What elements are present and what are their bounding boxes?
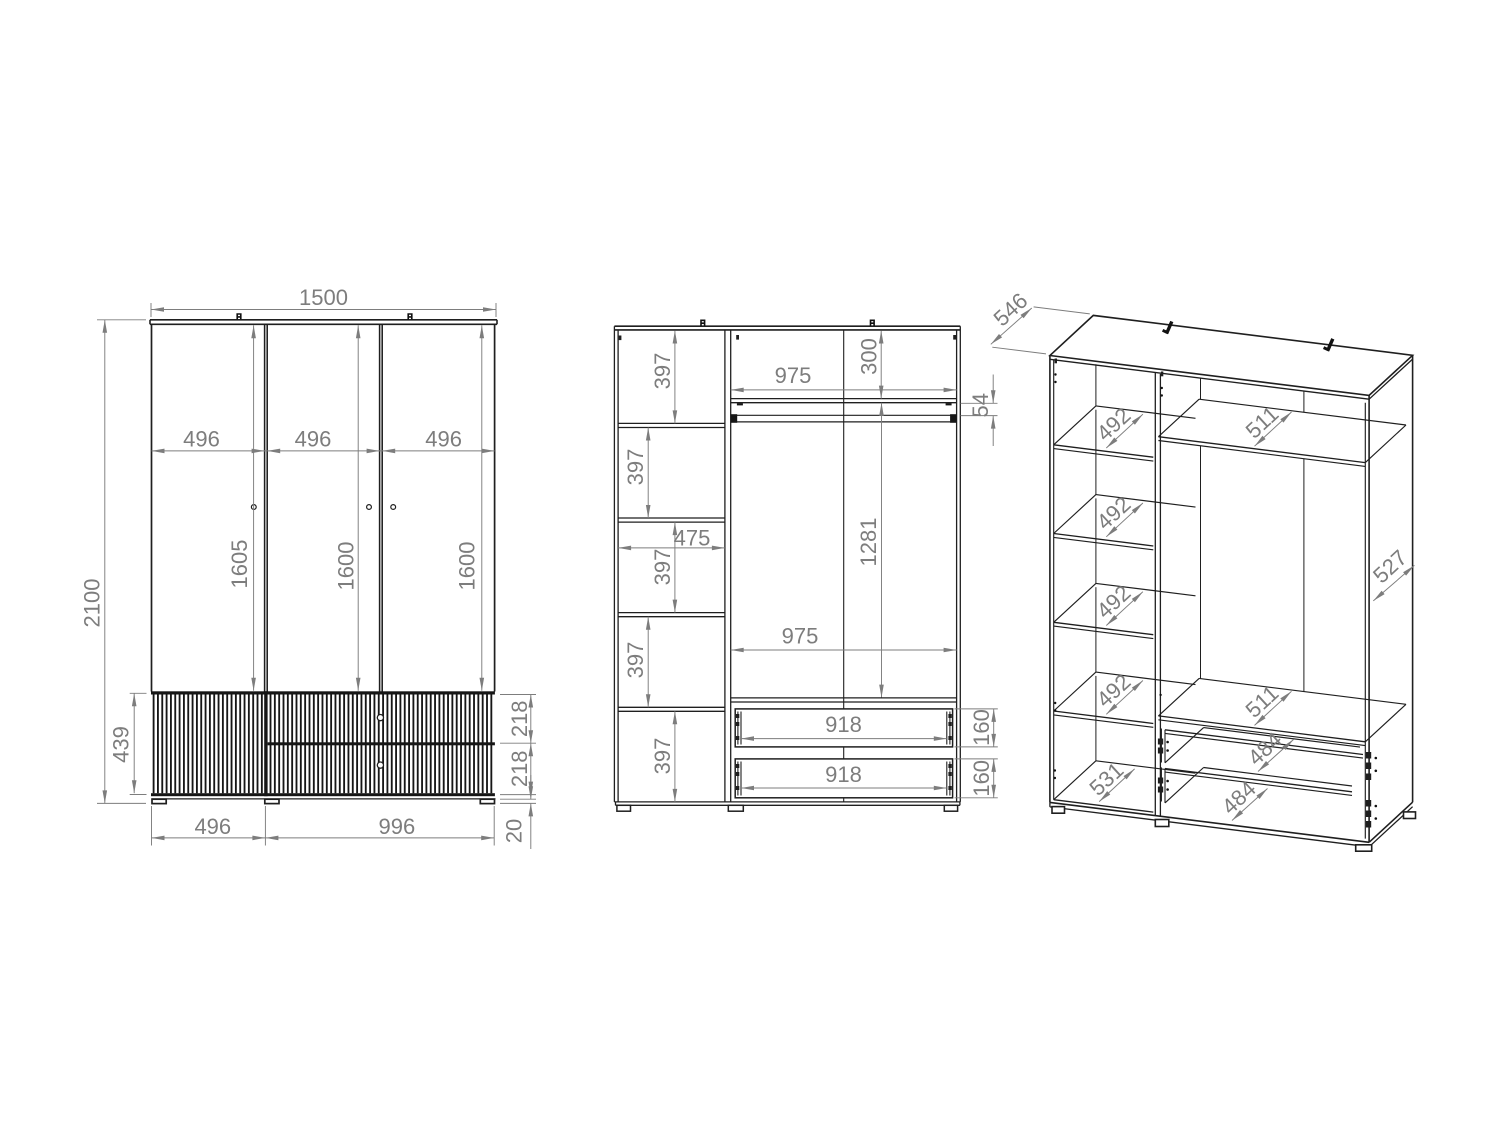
svg-text:397: 397 — [623, 642, 648, 679]
svg-text:975: 975 — [775, 363, 812, 388]
svg-text:1600: 1600 — [334, 542, 359, 591]
svg-text:160: 160 — [969, 760, 994, 797]
svg-text:218: 218 — [507, 700, 532, 737]
svg-text:496: 496 — [194, 814, 231, 839]
svg-text:1500: 1500 — [299, 285, 348, 310]
svg-text:996: 996 — [379, 814, 416, 839]
svg-text:1600: 1600 — [455, 542, 480, 591]
svg-text:218: 218 — [507, 750, 532, 787]
svg-text:20: 20 — [502, 819, 527, 843]
svg-text:2100: 2100 — [80, 579, 105, 628]
svg-text:1605: 1605 — [227, 540, 252, 589]
svg-text:397: 397 — [650, 353, 675, 390]
svg-text:397: 397 — [650, 549, 675, 586]
svg-text:496: 496 — [295, 426, 332, 451]
svg-text:160: 160 — [969, 709, 994, 746]
svg-text:439: 439 — [109, 726, 134, 763]
svg-text:496: 496 — [183, 426, 220, 451]
svg-text:1281: 1281 — [856, 518, 881, 567]
svg-text:975: 975 — [782, 624, 819, 649]
svg-text:397: 397 — [623, 449, 648, 486]
svg-text:918: 918 — [825, 712, 862, 737]
svg-text:475: 475 — [674, 526, 711, 551]
svg-text:300: 300 — [857, 338, 882, 375]
svg-text:397: 397 — [650, 738, 675, 775]
svg-text:496: 496 — [425, 426, 462, 451]
svg-text:54: 54 — [968, 393, 993, 417]
svg-text:918: 918 — [825, 762, 862, 787]
